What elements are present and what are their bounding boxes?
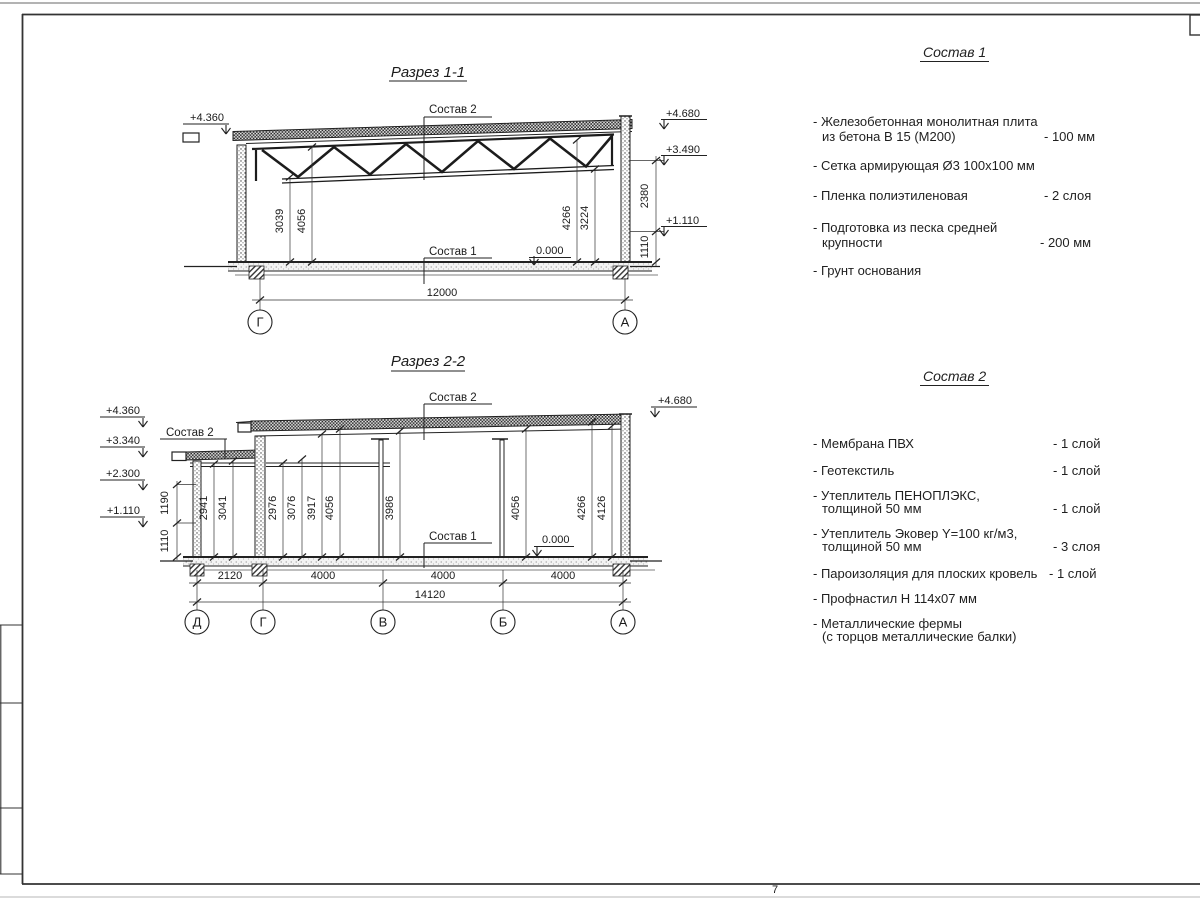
label-sostav2-tall: Состав 2 [429,392,477,404]
foundation-g [252,564,267,576]
axis-letter-d2: Д [193,615,202,630]
axis-letter-a2: А [619,615,628,630]
axis-letter-g2: Г [259,615,266,630]
axis-letter-b2: Б [499,615,508,630]
list-item: - Подготовка из песка средней [813,221,997,235]
dim-4000-2: 4000 [431,570,455,582]
dim-4126: 4126 [596,496,608,520]
dim-3986: 3986 [384,496,396,520]
dim-2976: 2976 [267,496,279,520]
dim-3039: 3039 [274,209,286,233]
roof-edge-detail [183,133,199,142]
elev-zero-2: 0.000 [542,534,570,546]
wall-right-1 [621,116,630,267]
dim-4056: 4056 [296,209,308,233]
dim-14120: 14120 [415,589,446,601]
dim-12000: 12000 [427,287,458,299]
list-item-value: - 3 слоя [1053,540,1100,554]
list-item: - Пароизоляция для плоских кровель [813,567,1037,581]
dim-3041: 3041 [217,496,229,520]
sostav1-title: Состав 1 [920,44,989,62]
sostav2-title: Состав 2 [920,368,989,386]
label-sostav2-low: Состав 2 [166,427,214,439]
dim-2941: 2941 [198,496,210,520]
column-b [492,439,508,558]
list-item-value: - 1 слой [1053,464,1101,478]
foundation-a [613,564,630,576]
list-item-value: - 1 слой [1053,437,1101,451]
dim-4266-2: 4266 [576,496,588,520]
list-item-cont: из бетона В 15 (М200) [822,130,956,144]
roof-edge-detail-low [172,452,186,461]
dim-3917: 3917 [306,496,318,520]
list-item: - Геотекстиль [813,464,894,478]
roof-slab-tall [251,414,630,431]
list-item-cont: крупности [822,236,882,250]
dim-3076: 3076 [286,496,298,520]
dim-4266: 4266 [561,206,573,230]
page-number: 7 [772,884,778,896]
dim-4000-3: 4000 [551,570,575,582]
dim-2380: 2380 [639,184,651,208]
elevation-marks-2-left: +4.360 +3.340 +2.300 +1.110 [100,405,148,527]
section-2-2: Разрез 2-2 [100,353,697,634]
floor-slab-1 [184,262,660,279]
wall-left-1 [237,145,246,267]
elev-4680: +4.680 [666,108,700,120]
elev-3490: +3.490 [666,144,700,156]
elevation-mark-2-right: +4.680 [651,395,698,417]
frame-corner-box [1190,15,1200,35]
list-item: - Пленка полиэтиленовая [813,189,968,203]
axis-letter-v2: В [379,615,388,630]
axis-letter-g: Г [256,315,263,330]
drawing-canvas: 7 Разрез 1-1 [0,0,1200,900]
label-sostav1-2: Состав 1 [429,531,477,543]
list-item-value: - 2 слоя [1044,189,1091,203]
interior-dims-1 [290,140,595,262]
list-item-cont: толщиной 50 мм [822,540,922,554]
roof-slab-low [186,450,258,460]
elev2-2300: +2.300 [106,468,140,480]
list-item-cont: толщиной 50 мм [822,502,922,516]
dim-1110: 1110 [639,236,651,259]
axis-letter-a: А [621,315,630,330]
foundation-right-1 [613,266,628,279]
foundation-left-1 [249,266,264,279]
elev2-4680: +4.680 [658,395,692,407]
list-item-value: - 100 мм [1044,130,1095,144]
elev2-3340: +3.340 [106,435,140,447]
roof-edge-detail-tall [238,423,251,432]
section2-title: Разрез 2-2 [391,353,466,370]
list-item-value: - 1 слой [1053,502,1101,516]
elev2-1110: +1.110 [107,505,140,517]
list-item: - Сетка армирующая Ø3 100х100 мм [813,159,1035,173]
dim-1190: 1190 [159,491,171,515]
section1-title: Разрез 1-1 [391,64,465,81]
left-stamp-boxes [0,625,22,874]
list-item-cont: (с торцов металлические балки) [822,630,1017,644]
dim-4056-ba: 4056 [510,496,522,520]
dim-2120: 2120 [218,570,242,582]
dim-4056-gv: 4056 [324,496,336,520]
list-item: - Мембрана ПВХ [813,437,914,451]
dim-4000-1: 4000 [311,570,335,582]
beam-lines [190,463,390,467]
label-sostav1-1: Состав 1 [429,246,477,258]
elev-4360: +4.360 [190,112,224,124]
list-item: - Профнастил Н 114х07 мм [813,592,977,606]
list-item-value: - 1 слой [1049,567,1097,581]
list-item: - Железобетонная монолитная плита [813,115,1038,129]
elev-zero-1: 0.000 [536,245,564,257]
label-sostav2-1: Состав 2 [429,104,477,116]
drawing-sheet: 7 Разрез 1-1 [0,0,1200,900]
elev2-4360: +4.360 [106,405,140,417]
dim-3224: 3224 [579,206,591,230]
sheet-frame [0,3,1200,897]
list-item-value: - 200 мм [1040,236,1091,250]
elev-1110: +1.110 [666,215,699,227]
dim-1110-2: 1110 [159,530,171,553]
section-1-1: Разрез 1-1 [183,64,707,334]
wall-a [621,414,630,558]
column-g [255,436,265,558]
list-item: - Грунт основания [813,264,921,278]
